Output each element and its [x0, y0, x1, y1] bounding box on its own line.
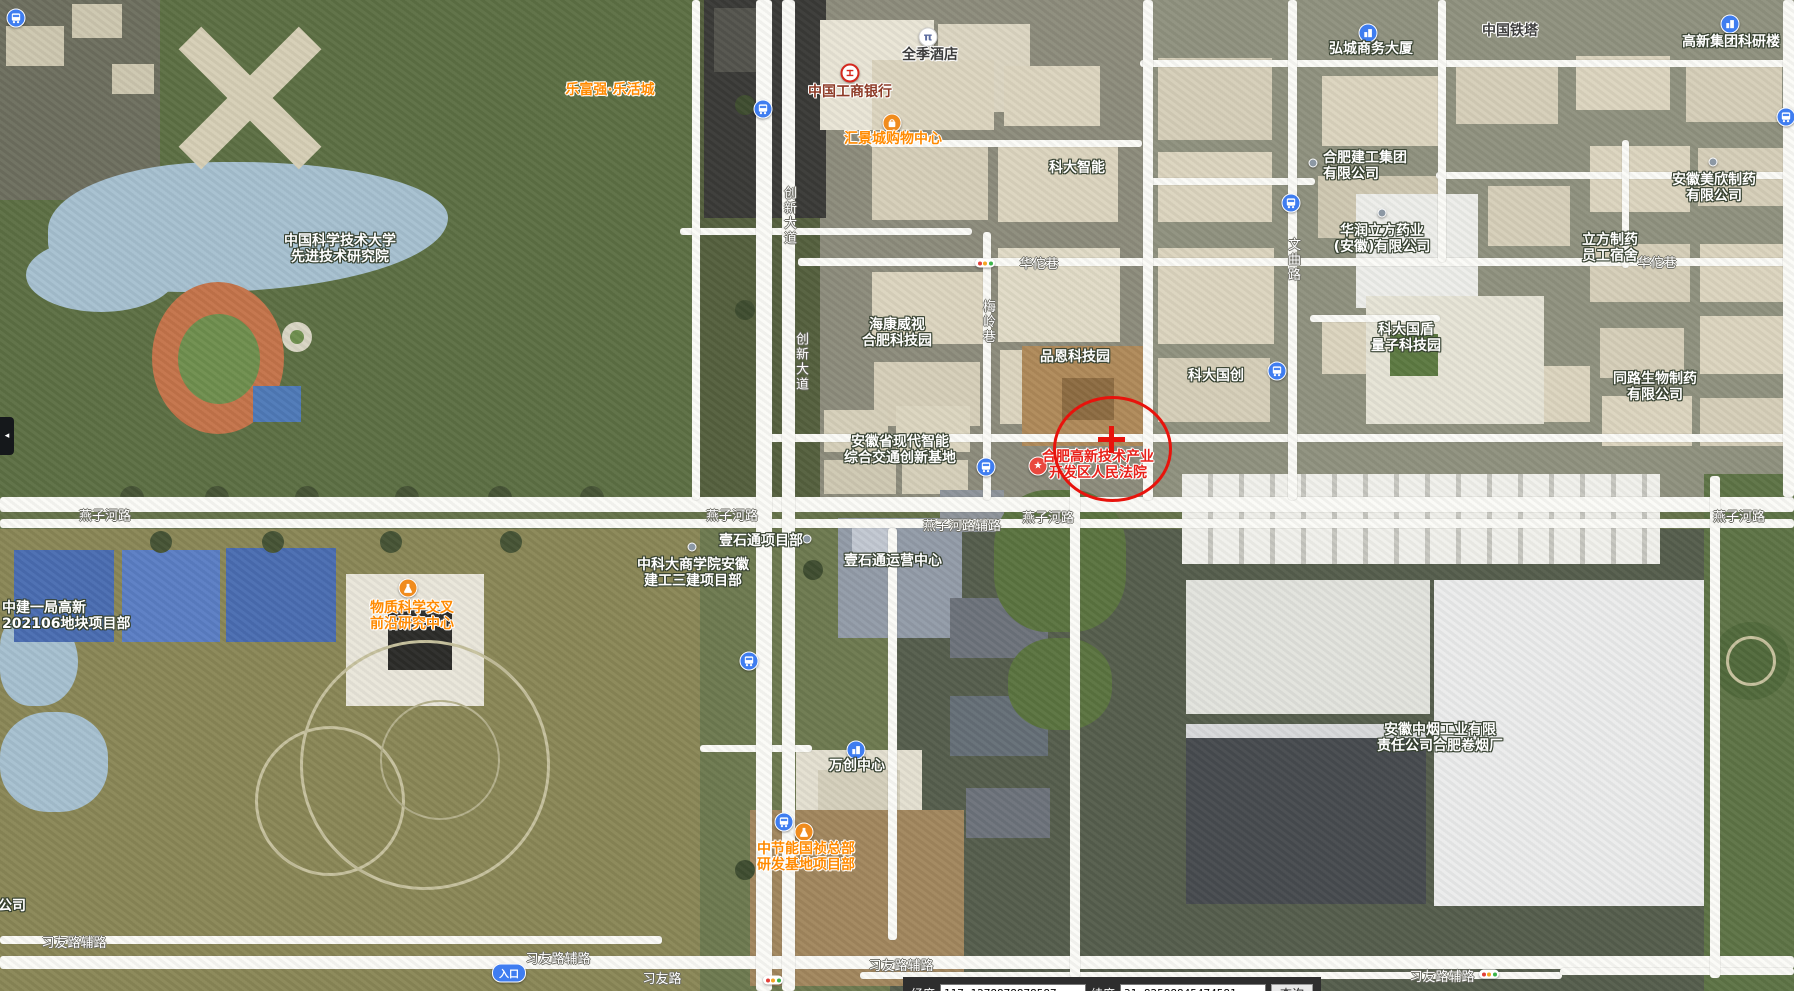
dot-icon: [1378, 209, 1387, 218]
xiyou-road-label: 习友路: [642, 972, 681, 988]
anhui-intelligent-transport-base-label[interactable]: 安徽省现代智能综合交通创新基地: [844, 434, 956, 466]
keda-guodun-quantum-park-label[interactable]: 科大国盾量子科技园: [1371, 322, 1441, 354]
chuangxin-avenue-2-label: 创新大道: [793, 332, 807, 392]
road-segment: [0, 497, 1794, 512]
ustc-advanced-institute-label[interactable]: 中国科学技术大学先进技术研究院: [284, 233, 396, 265]
terrain-block: [26, 238, 176, 312]
terrain-block: [290, 330, 304, 344]
china-tower-label[interactable]: 中国铁塔: [1482, 23, 1538, 39]
hongcheng-business-tower-label[interactable]: 弘城商务大厦: [1329, 41, 1413, 57]
terrain-block: [1158, 152, 1272, 222]
keda-zhineng-label[interactable]: 科大智能: [1049, 160, 1105, 176]
entrance-icon[interactable]: 入口: [492, 964, 526, 983]
traffic-icon: [763, 976, 783, 985]
dot-icon: [688, 543, 697, 552]
road-segment: [1710, 476, 1720, 978]
hefei-construction-group-label[interactable]: 合肥建工集团有限公司: [1323, 150, 1407, 182]
lefuqiang-plaza-label[interactable]: 乐富强·乐活城: [565, 82, 654, 98]
latitude-label: 纬度: [1091, 985, 1115, 991]
terrain-block: [1322, 76, 1440, 146]
terrain-block: [1488, 186, 1570, 246]
terrain-block: [178, 314, 260, 404]
xiyou-side-road-1-label: 习友路辅路: [41, 936, 106, 952]
flask-icon[interactable]: [399, 579, 418, 598]
terrain-block: [1158, 58, 1272, 140]
terrain-block: [998, 146, 1118, 222]
anhui-meixin-pharma-label[interactable]: 安徽美欣制药有限公司: [1672, 172, 1756, 204]
terrain-block: [735, 95, 755, 115]
terrain-block: [735, 860, 755, 880]
bus-icon[interactable]: [740, 652, 759, 671]
terrain-block: [262, 531, 284, 553]
terrain-block: [966, 788, 1050, 838]
terrain-block: [500, 531, 522, 553]
truncated-company-label[interactable]: 公司: [0, 898, 26, 914]
gaoxin-group-research-building-label[interactable]: 高新集团科研楼: [1682, 34, 1780, 50]
tonglu-bio-pharma-label[interactable]: 同路生物制药有限公司: [1613, 371, 1697, 403]
terrain-block: [0, 712, 108, 812]
terrain-block: [380, 700, 500, 820]
road-segment: [692, 0, 700, 500]
yishitong-project-label[interactable]: 壹石通项目部: [719, 533, 803, 549]
query-button[interactable]: 查询: [1271, 984, 1313, 991]
terrain-block: [6, 26, 64, 66]
yanzihe-road-1-label: 燕子河路: [79, 509, 131, 525]
hotel-icon[interactable]: π: [919, 28, 938, 47]
latitude-input[interactable]: [1120, 984, 1266, 991]
terrain-block: [1686, 64, 1782, 122]
terrain-block: [122, 550, 220, 642]
material-science-center-label[interactable]: 物质科学交叉前沿研究中心: [370, 600, 454, 632]
terrain-block: [253, 386, 301, 422]
bus-icon[interactable]: [1268, 362, 1287, 381]
bank-icon[interactable]: [841, 64, 860, 83]
terrain-block: [1008, 638, 1112, 730]
crosshair-marker: [1109, 426, 1114, 453]
shopping-icon[interactable]: [883, 114, 902, 133]
longitude-label: 经度: [911, 985, 935, 991]
building-icon[interactable]: [1721, 15, 1740, 34]
satellite-map-canvas[interactable]: π★入口 中国科学技术大学先进技术研究院乐富强·乐活城全季酒店中国工商银行汇景城…: [0, 0, 1794, 991]
hikvision-hefei-park-label[interactable]: 海康威视合肥科技园: [862, 317, 932, 349]
terrain-block: [872, 146, 988, 220]
terrain-block: [380, 531, 402, 553]
bus-icon[interactable]: [1777, 108, 1794, 127]
anhui-tobacco-factory-label[interactable]: 安徽中烟工业有限责任公司合肥卷烟厂: [1377, 722, 1503, 754]
terrain-block: [735, 300, 755, 320]
terrain-block: [226, 548, 336, 642]
wenqu-road-label: 文曲路: [1285, 238, 1299, 283]
keda-guochuang-label[interactable]: 科大国创: [1188, 368, 1244, 384]
road-segment: [1560, 968, 1794, 975]
wanchuang-center-label[interactable]: 万创中心: [829, 758, 885, 774]
bus-icon[interactable]: [754, 100, 773, 119]
xiyou-side-road-4-label: 习友路辅路: [1409, 970, 1474, 986]
terrain-block: [1700, 244, 1784, 302]
huatuo-lane-1-label: 华佗巷: [1019, 257, 1058, 273]
traffic-icon: [975, 259, 995, 268]
xiyou-side-road-3-label: 习友路辅路: [868, 959, 933, 975]
terrain-block: [150, 531, 172, 553]
coordinate-query-bar: 经度 纬度 查询: [903, 977, 1321, 991]
ustc-business-school-project-label[interactable]: 中科大商学院安徽建工三建项目部: [637, 557, 749, 589]
terrain-block: [1186, 580, 1430, 714]
huarun-lifang-pharma-label[interactable]: 华润立方药业(安徽)有限公司: [1334, 223, 1431, 255]
building-icon[interactable]: [847, 741, 866, 760]
quanji-hotel-label[interactable]: 全季酒店: [902, 47, 958, 63]
terrain-block: [112, 64, 154, 94]
dot-icon: [1309, 159, 1318, 168]
sidebar-collapse-toggle[interactable]: ◂: [0, 417, 14, 455]
bus-icon[interactable]: [775, 813, 794, 832]
terrain-block: [1726, 636, 1776, 686]
dot-icon: [803, 535, 812, 544]
road-segment: [888, 528, 897, 940]
road-segment: [1310, 315, 1440, 322]
yanzihe-road-4-label: 燕子河路: [1713, 510, 1765, 526]
zhongjian-yiju-project-label[interactable]: 中建一局高新202106地块项目部: [2, 600, 130, 632]
road-segment: [1783, 0, 1794, 497]
lifang-pharma-dorm-label[interactable]: 立方制药员工宿舍: [1582, 232, 1638, 264]
yanzihe-road-3-label: 燕子河路: [1022, 511, 1074, 527]
terrain-block: [1456, 64, 1558, 124]
building-icon[interactable]: [1359, 24, 1378, 43]
flask-icon[interactable]: [795, 823, 814, 842]
road-segment: [0, 519, 1794, 528]
yishitong-ops-center-label[interactable]: 壹石通运营中心: [844, 553, 942, 569]
bus-icon[interactable]: [7, 9, 26, 28]
chuangxin-avenue-1-label: 创新大道: [781, 186, 795, 246]
bus-icon[interactable]: [1282, 194, 1301, 213]
terrain-block: [72, 4, 122, 38]
bus-icon[interactable]: [977, 458, 996, 477]
road-segment: [1140, 60, 1794, 67]
huatuo-lane-2-label: 华佗巷: [1637, 256, 1676, 272]
meiling-lane-label: 梅岭巷: [980, 300, 994, 345]
icbc-bank-label[interactable]: 中国工商银行: [808, 84, 892, 100]
dot-icon: [1709, 158, 1718, 167]
huijingcheng-mall-label[interactable]: 汇景城购物中心: [844, 131, 942, 147]
longitude-input[interactable]: [940, 984, 1086, 991]
pinen-tech-park-label[interactable]: 品恩科技园: [1040, 349, 1110, 365]
yanzihe-road-2-label: 燕子河路: [706, 509, 758, 525]
road-segment: [1070, 476, 1080, 978]
road-segment: [1438, 0, 1446, 262]
cecep-guozhen-hq-project-label[interactable]: 中节能国祯总部研发基地项目部: [757, 841, 855, 873]
traffic-icon: [1479, 970, 1499, 979]
terrain-block: [1700, 316, 1784, 374]
terrain-block: [1004, 66, 1100, 126]
yanzihe-side-road-label: 燕子河路辅路: [923, 519, 1001, 535]
terrain-block: [803, 560, 823, 580]
road-segment: [680, 228, 972, 235]
xiyou-side-road-2-label: 习友路辅路: [525, 952, 590, 968]
